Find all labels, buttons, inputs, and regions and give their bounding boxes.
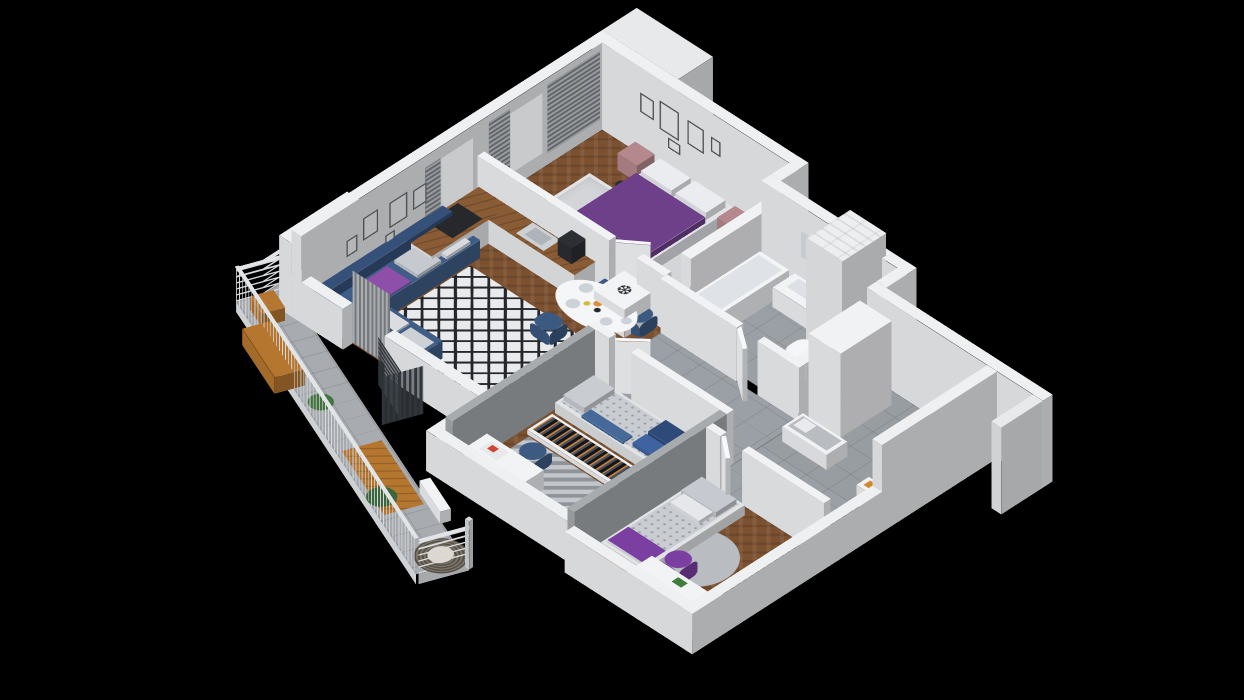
render-canvas: ❆ [0,0,1244,700]
